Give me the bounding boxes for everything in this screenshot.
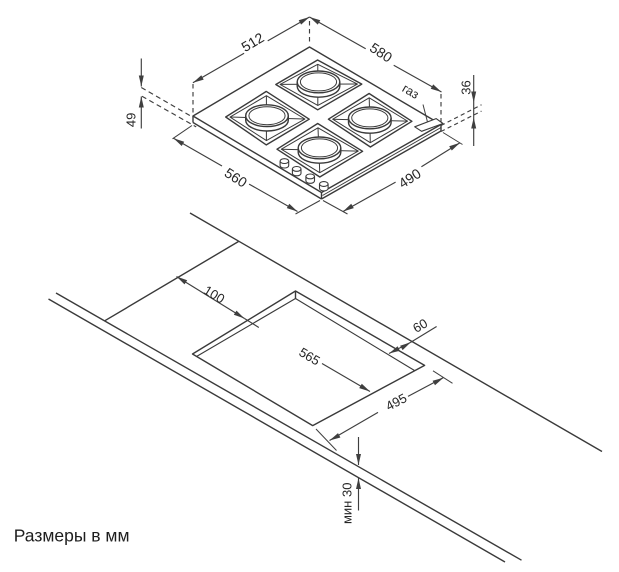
svg-text:36: 36 [459,80,474,94]
svg-text:49: 49 [124,113,139,127]
svg-text:Размеры в мм: Размеры в мм [14,526,130,546]
svg-text:мин 30: мин 30 [339,483,354,524]
